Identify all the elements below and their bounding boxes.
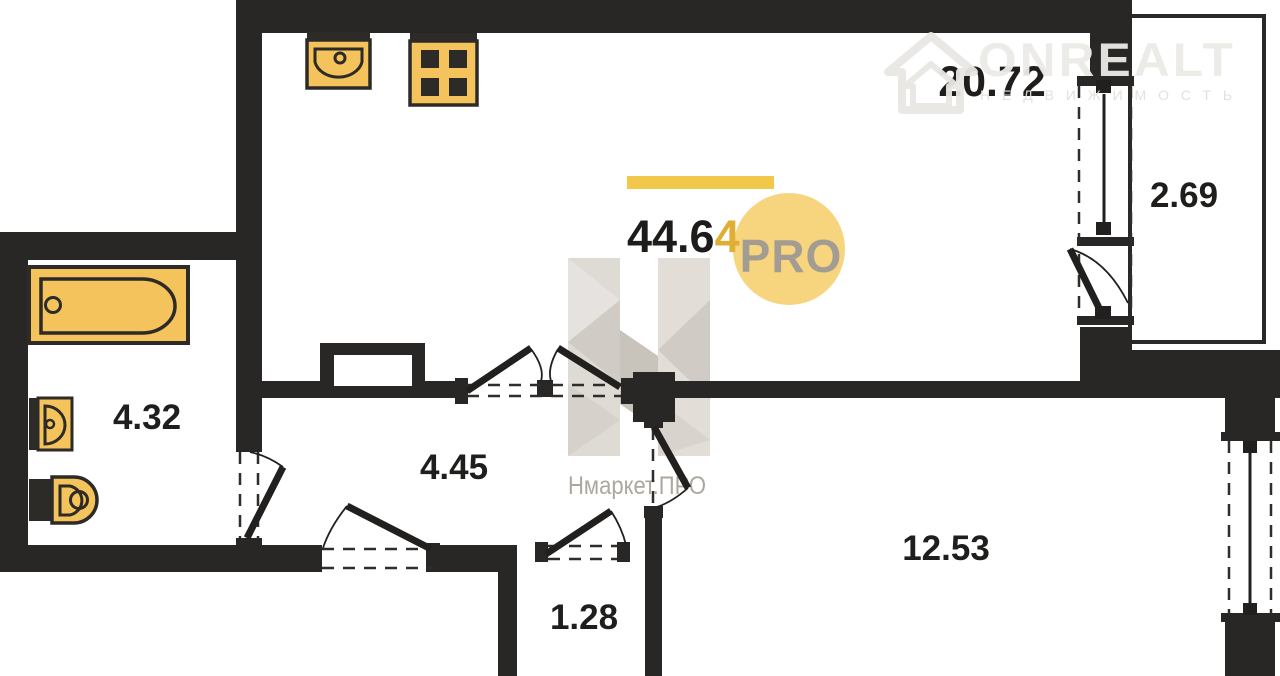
floorplan-canvas: Нмаркет.ПРО [0, 0, 1280, 676]
floorplan-screenshot: Нмаркет.ПРО [0, 0, 1280, 676]
pro-badge-label: PRO [740, 230, 843, 282]
stove-icon [410, 33, 477, 105]
room-label-bathroom: 4.32 [113, 398, 181, 437]
bathtub-icon [29, 267, 188, 343]
room-label-closet: 1.28 [550, 598, 618, 637]
washbasin-icon [29, 398, 72, 450]
room-label-hallway: 4.45 [420, 448, 488, 487]
onrealt-logo-text: ONREALT [978, 33, 1236, 86]
kitchen-sink-icon [307, 32, 370, 88]
room-label-balcony: 2.69 [1150, 176, 1218, 215]
room-label-bedroom: 12.53 [902, 529, 990, 568]
toilet-icon [29, 477, 97, 523]
total-area-label: 44.64 [627, 211, 740, 262]
duct-shaft [334, 355, 412, 386]
total-area-underline-bar [627, 176, 774, 189]
